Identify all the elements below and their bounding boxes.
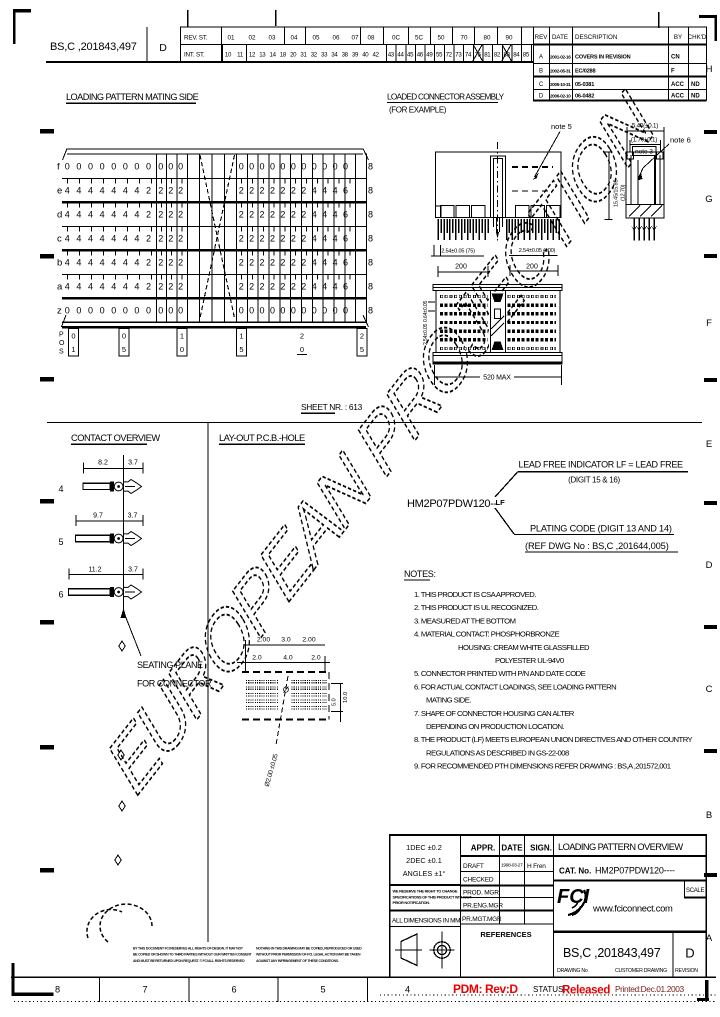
svg-text:D: D: [159, 42, 167, 54]
svg-text:44444442: 44444442: [65, 185, 158, 195]
svg-text:BY THIS DOCUMENT FCI RESERVES: BY THIS DOCUMENT FCI RESERVES ALL RIGHTS…: [133, 947, 244, 951]
svg-text:FOR CONNECTOR: FOR CONNECTOR: [137, 679, 212, 689]
svg-text:D: D: [685, 946, 694, 961]
svg-text:PR.ENG.MGR: PR.ENG.MGR: [463, 903, 503, 910]
svg-text:4: 4: [59, 484, 64, 494]
svg-text:note 6: note 6: [670, 136, 691, 145]
svg-text:18: 18: [280, 52, 287, 59]
svg-text:32: 32: [311, 52, 318, 59]
svg-text:MATING SIDE.: MATING SIDE.: [426, 696, 471, 705]
svg-text:B: B: [539, 69, 543, 75]
svg-text:POLYESTER UL-94V0: POLYESTER UL-94V0: [495, 656, 564, 665]
svg-text:3.7: 3.7: [128, 460, 138, 467]
svg-text:06: 06: [332, 35, 340, 42]
svg-text:1: 1: [180, 332, 184, 341]
svg-text:S: S: [59, 349, 64, 356]
svg-text:BE COPIED OR SHOWN TO THIRD PA: BE COPIED OR SHOWN TO THIRD PARTIES WITH…: [133, 953, 253, 957]
svg-text:REGULATIONS AS DESCRIBED IN GS: REGULATIONS AS DESCRIBED IN GS-22-008: [426, 748, 569, 757]
svg-text:SIGN.: SIGN.: [530, 844, 552, 853]
svg-text:e: e: [57, 185, 62, 196]
svg-text:200: 200: [455, 264, 467, 271]
svg-text:33: 33: [321, 52, 328, 59]
svg-text:SHEET NR. : 613: SHEET NR. : 613: [301, 402, 363, 412]
svg-text:5C: 5C: [415, 35, 424, 42]
svg-text:10.0: 10.0: [343, 692, 349, 703]
svg-text:2.0: 2.0: [252, 655, 262, 662]
svg-text:03: 03: [268, 35, 276, 42]
svg-text:34: 34: [331, 52, 338, 59]
svg-text:DATE: DATE: [501, 844, 523, 853]
svg-text:B: B: [706, 810, 712, 821]
svg-text:note 3: note 3: [635, 149, 653, 156]
svg-text:2002-05-31: 2002-05-31: [550, 69, 571, 74]
svg-text:7. SHAPE OF CONNECTOR HOUSING: 7. SHAPE OF CONNECTOR HOUSING CAN ALTER: [414, 709, 575, 718]
svg-text:222: 222: [158, 281, 188, 291]
svg-text:08: 08: [367, 35, 375, 42]
svg-text:5: 5: [59, 537, 64, 547]
svg-text:1DEC ±0.2: 1DEC ±0.2: [406, 843, 442, 852]
svg-text:F: F: [671, 69, 675, 75]
svg-text:06-0482: 06-0482: [575, 94, 594, 100]
svg-text:5: 5: [320, 985, 325, 995]
svg-text:00000000: 00000000: [65, 305, 158, 315]
svg-text:222: 222: [158, 257, 188, 267]
svg-text:SEATING PLANE: SEATING PLANE: [137, 660, 203, 670]
svg-text:8: 8: [368, 305, 373, 315]
svg-text:P: P: [59, 332, 64, 339]
svg-text:0: 0: [180, 345, 184, 354]
svg-text:2. THIS PRODUCT IS UL RECOGNIZ: 2. THIS PRODUCT IS UL RECOGNIZED.: [414, 603, 539, 612]
svg-text:2.54±0.05 (75): 2.54±0.05 (75): [441, 249, 475, 255]
svg-text:CUSTOMER DRAWING: CUSTOMER DRAWING: [615, 968, 667, 974]
svg-text:0: 0: [122, 332, 126, 341]
svg-text:8. THE PRODUCT (LF) MEETS EURO: 8. THE PRODUCT (LF) MEETS EUROPEAN UNION…: [414, 735, 693, 744]
svg-text:84: 84: [513, 52, 520, 59]
svg-text:DESCRIPTION: DESCRIPTION: [575, 34, 617, 41]
svg-text:05-0381: 05-0381: [575, 82, 594, 88]
svg-text:C: C: [706, 684, 713, 695]
svg-text:WITHOUT PRIOR PERMISSION OF FC: WITHOUT PRIOR PERMISSION OF FCI. LEGAL A…: [256, 953, 361, 957]
svg-text:85: 85: [523, 52, 530, 59]
svg-text:CONTACT OVERVIEW: CONTACT OVERVIEW: [71, 433, 160, 443]
svg-text:REFERENCES: REFERENCES: [480, 930, 531, 939]
svg-text:DRAWING No: DRAWING No: [557, 968, 588, 974]
svg-text:22222224446: 22222224446: [239, 233, 354, 243]
svg-text:11.2: 11.2: [88, 567, 101, 574]
svg-text:01: 01: [227, 35, 235, 42]
svg-text:APPR.: APPR.: [471, 844, 495, 853]
svg-text:0C: 0C: [392, 35, 401, 42]
svg-text:2.00: 2.00: [257, 637, 270, 644]
svg-text:PDM: Rev:D: PDM: Rev:D: [453, 982, 518, 996]
svg-text:72: 72: [446, 52, 453, 59]
svg-text:0: 0: [71, 332, 75, 341]
svg-text:22222224446: 22222224446: [239, 185, 354, 195]
svg-text:D: D: [706, 560, 713, 571]
svg-text:8: 8: [368, 185, 373, 195]
svg-text:81: 81: [484, 52, 491, 59]
svg-text:44444442: 44444442: [65, 209, 158, 219]
svg-text:note 5: note 5: [551, 122, 572, 131]
svg-text:HOUSING: CREAM WHITE GLASSFILL: HOUSING: CREAM WHITE GLASSFILLED: [458, 643, 590, 652]
svg-text:1: 1: [71, 345, 75, 354]
svg-text:CHK'D: CHK'D: [688, 34, 707, 41]
svg-text:CN: CN: [671, 55, 680, 61]
svg-text:PLATING CODE (DIGIT 13 AND 14): PLATING CODE (DIGIT 13 AND 14): [530, 524, 672, 534]
svg-text:C: C: [539, 82, 544, 88]
svg-text:22222224446: 22222224446: [239, 281, 354, 291]
svg-text:46: 46: [417, 52, 424, 59]
svg-text:00000000000: 00000000000: [239, 305, 354, 315]
svg-text:13: 13: [259, 52, 266, 59]
svg-text:A: A: [539, 55, 543, 61]
svg-text:z: z: [57, 305, 62, 316]
svg-text:8.2: 8.2: [98, 460, 108, 467]
svg-text:Released: Released: [562, 985, 610, 997]
svg-text:12: 12: [249, 52, 256, 59]
svg-text:ACC: ACC: [671, 94, 685, 100]
svg-text:6: 6: [231, 985, 236, 995]
svg-text:70: 70: [460, 35, 468, 42]
svg-text:02: 02: [248, 35, 256, 42]
svg-text:07: 07: [351, 35, 359, 42]
svg-text:4. MATERIAL CONTACT: PHOSPHORB: 4. MATERIAL CONTACT: PHOSPHORBRONZE: [414, 630, 559, 639]
svg-text:Printed:Dec.01.2003: Printed:Dec.01.2003: [615, 984, 684, 994]
svg-text:1: 1: [239, 332, 243, 341]
svg-text:ACC: ACC: [671, 82, 685, 88]
svg-text:CHECKED: CHECKED: [463, 877, 494, 884]
svg-text:COVERS IN REVISION: COVERS IN REVISION: [575, 55, 631, 61]
svg-text:5. CONNECTOR PRINTED WITH P/N: 5. CONNECTOR PRINTED WITH P/N AND DATE C…: [414, 669, 586, 678]
svg-text:D: D: [539, 94, 544, 100]
svg-text:d: d: [57, 209, 62, 220]
svg-text:H Fren: H Fren: [527, 863, 546, 870]
svg-text:8: 8: [368, 209, 373, 219]
svg-text:2.00: 2.00: [302, 637, 315, 644]
svg-text:31: 31: [300, 52, 307, 59]
svg-text:BY: BY: [674, 34, 682, 41]
svg-text:REV: REV: [535, 34, 549, 41]
svg-text:2005-10-31: 2005-10-31: [550, 82, 571, 87]
svg-text:55: 55: [436, 52, 443, 59]
svg-text:9.7: 9.7: [93, 513, 103, 520]
svg-text:45: 45: [407, 52, 414, 59]
svg-text:222: 222: [158, 233, 188, 243]
svg-text:REVISION: REVISION: [675, 968, 698, 974]
svg-text:000: 000: [158, 305, 188, 315]
svg-text:38: 38: [342, 52, 349, 59]
svg-text:HM2P07PDW120----: HM2P07PDW120----: [595, 866, 675, 876]
svg-text:10: 10: [225, 52, 232, 59]
svg-text:F: F: [706, 318, 712, 329]
svg-text:7: 7: [142, 985, 147, 995]
svg-text:www.fciconnect.com: www.fciconnect.com: [592, 903, 673, 914]
svg-text:3. MEASURED AT THE BOTTOM: 3. MEASURED AT THE BOTTOM: [414, 616, 516, 625]
svg-text:3.7: 3.7: [128, 513, 138, 520]
svg-text:PRIOR NOTIFICATION.: PRIOR NOTIFICATION.: [393, 900, 430, 905]
svg-text:LOADING PATTERN MATING SIDE: LOADING PATTERN MATING SIDE: [66, 92, 199, 102]
svg-text:AGAINST ANY INFRINGEMENT OF TH: AGAINST ANY INFRINGEMENT OF THESE CONDIT…: [256, 959, 339, 963]
svg-text:HM2P07PDW120--: HM2P07PDW120--: [407, 498, 498, 510]
svg-text:8: 8: [368, 233, 373, 243]
svg-text:DATE: DATE: [552, 34, 568, 41]
svg-text:NOTHING IN THIS DRAWING MAY BE: NOTHING IN THIS DRAWING MAY BE COPIED, R…: [256, 947, 362, 951]
svg-text:50: 50: [437, 35, 445, 42]
svg-text:520 MAX: 520 MAX: [483, 375, 511, 382]
svg-text:(DIGIT 15 & 16): (DIGIT 15 & 16): [568, 476, 620, 485]
svg-text:2001-02-16: 2001-02-16: [550, 55, 571, 60]
svg-text:DRAFT: DRAFT: [463, 863, 484, 870]
svg-text:44444442: 44444442: [65, 233, 158, 243]
svg-text:8: 8: [368, 162, 373, 172]
svg-text:11: 11: [237, 52, 244, 59]
svg-text:200: 200: [526, 264, 538, 271]
svg-text:PROD. MGR.: PROD. MGR.: [463, 890, 501, 897]
svg-text:WE RESERVE THE RIGHT TO CHANGE: WE RESERVE THE RIGHT TO CHANGE: [393, 889, 458, 894]
svg-text:INT. ST.: INT. ST.: [184, 52, 205, 59]
svg-text:39: 39: [352, 52, 359, 59]
svg-text:5: 5: [122, 345, 126, 354]
svg-text:5: 5: [360, 345, 364, 354]
svg-text:LOADED CONNECTOR ASSEMBLY: LOADED CONNECTOR ASSEMBLY: [387, 93, 505, 102]
svg-text:20: 20: [290, 52, 297, 59]
svg-text:00000000: 00000000: [65, 162, 158, 172]
svg-text:PR.MGT.MGR: PR.MGT.MGR: [462, 916, 502, 923]
svg-text:0: 0: [300, 345, 304, 354]
svg-text:22222224446: 22222224446: [239, 209, 354, 219]
svg-text:2.54±0.05: 2.54±0.05: [423, 323, 429, 345]
svg-text:22222224446: 22222224446: [239, 257, 354, 267]
svg-text:9. FOR RECOMMENDED PTH DIMENSI: 9. FOR RECOMMENDED PTH DIMENSIONS REFER …: [414, 762, 671, 771]
svg-text:3.7: 3.7: [128, 567, 138, 574]
svg-text:ND: ND: [691, 82, 700, 88]
svg-text:15.45/15.85: 15.45/15.85: [614, 180, 620, 207]
svg-text:4.0: 4.0: [283, 655, 293, 662]
svg-text:CAT. No.: CAT. No.: [559, 867, 591, 876]
svg-text:f: f: [57, 162, 60, 173]
svg-text:2: 2: [300, 332, 304, 341]
svg-text:G: G: [705, 194, 712, 205]
svg-text:LF: LF: [496, 498, 506, 507]
svg-text:000: 000: [158, 162, 188, 172]
svg-text:BS,C ,201843,497: BS,C ,201843,497: [563, 946, 661, 960]
svg-text:6. FOR ACTUAL CONTACT LOADINGS: 6. FOR ACTUAL CONTACT LOADINGS, SEE LOAD…: [414, 682, 616, 691]
svg-text:49: 49: [426, 52, 433, 59]
svg-text:90: 90: [505, 35, 513, 42]
svg-text:5: 5: [239, 345, 243, 354]
svg-text:5.0: 5.0: [332, 698, 338, 706]
svg-text:222: 222: [158, 209, 188, 219]
svg-text:5.40(±0.1): 5.40(±0.1): [632, 123, 658, 130]
svg-text:LAY-OUT P.C.B.-HOLE: LAY-OUT P.C.B.-HOLE: [219, 433, 305, 443]
svg-text:2: 2: [360, 332, 364, 341]
svg-text:1. THIS PRODUCT IS CSA APPROVE: 1. THIS PRODUCT IS CSA APPROVED.: [414, 590, 536, 599]
svg-text:44: 44: [397, 52, 404, 59]
svg-text:44444442: 44444442: [65, 257, 158, 267]
svg-text:00000000000: 00000000000: [239, 162, 354, 172]
svg-text:73: 73: [455, 52, 462, 59]
svg-text:AND MUST BE RETURNED UPON REQU: AND MUST BE RETURNED UPON REQUEST. © FCI…: [133, 959, 245, 963]
svg-text:E: E: [706, 439, 712, 450]
svg-text:STATUS:: STATUS:: [533, 985, 566, 994]
svg-text:EC/0288: EC/0288: [575, 69, 595, 75]
svg-text:O: O: [59, 340, 65, 347]
svg-text:14: 14: [270, 52, 277, 59]
svg-text:LEAD FREE INDICATOR LF = LE: LEAD FREE INDICATOR LF = LEAD FREE: [519, 460, 684, 470]
svg-text:44444442: 44444442: [65, 281, 158, 291]
svg-text:ANGLES ±1°: ANGLES ±1°: [403, 869, 446, 878]
svg-text:2.54±0.05 (100): 2.54±0.05 (100): [519, 248, 556, 254]
svg-text:c: c: [57, 233, 62, 244]
svg-text:43: 43: [388, 52, 395, 59]
svg-text:04: 04: [290, 35, 298, 42]
svg-text:ND: ND: [691, 94, 700, 100]
svg-text:8: 8: [55, 985, 60, 995]
svg-text:(12.70): (12.70): [621, 184, 627, 201]
svg-text:BS,C ,201843,497: BS,C ,201843,497: [50, 41, 137, 53]
svg-text:2.0: 2.0: [311, 655, 321, 662]
svg-text:b: b: [57, 257, 62, 268]
svg-text:SCALE: SCALE: [686, 888, 704, 894]
svg-text:2DEC ±0.1: 2DEC ±0.1: [406, 856, 442, 865]
svg-text:a: a: [57, 281, 63, 292]
svg-text:LOADING PATTERN OVERVIEW: LOADING PATTERN OVERVIEW: [558, 842, 683, 852]
svg-text:(1.70±0.1): (1.70±0.1): [631, 137, 657, 144]
svg-text:222: 222: [158, 185, 188, 195]
svg-text:ALL DIMENSIONS IN MM: ALL DIMENSIONS IN MM: [392, 918, 460, 925]
svg-text:4: 4: [405, 985, 410, 995]
svg-text:42: 42: [373, 52, 380, 59]
svg-text:74: 74: [465, 52, 472, 59]
svg-text:8: 8: [368, 257, 373, 267]
svg-text:(REF DWG No : BS,C ,201644,005: (REF DWG No : BS,C ,201644,005): [525, 541, 669, 551]
svg-text:3.0: 3.0: [281, 637, 291, 644]
svg-text:1998-03-27: 1998-03-27: [501, 863, 523, 869]
svg-text:80: 80: [483, 35, 491, 42]
svg-text:40: 40: [362, 52, 369, 59]
svg-text:(FOR EXAMPLE): (FOR EXAMPLE): [389, 106, 447, 115]
svg-text:05: 05: [312, 35, 320, 42]
svg-text:SPECIFICATIONS OF THIS PRODUCT: SPECIFICATIONS OF THIS PRODUCT WITHOUT: [393, 894, 473, 899]
svg-text:8: 8: [368, 281, 373, 291]
svg-text:6: 6: [59, 590, 64, 600]
svg-text:2006-02-10: 2006-02-10: [550, 94, 571, 99]
svg-text:REV. ST.: REV. ST.: [184, 35, 208, 42]
svg-text:DEPENDING ON PRODUCTION LOCATI: DEPENDING ON PRODUCTION LOCATION.: [426, 722, 564, 731]
svg-text:NOTES:: NOTES:: [404, 569, 436, 579]
svg-text:82: 82: [494, 52, 501, 59]
